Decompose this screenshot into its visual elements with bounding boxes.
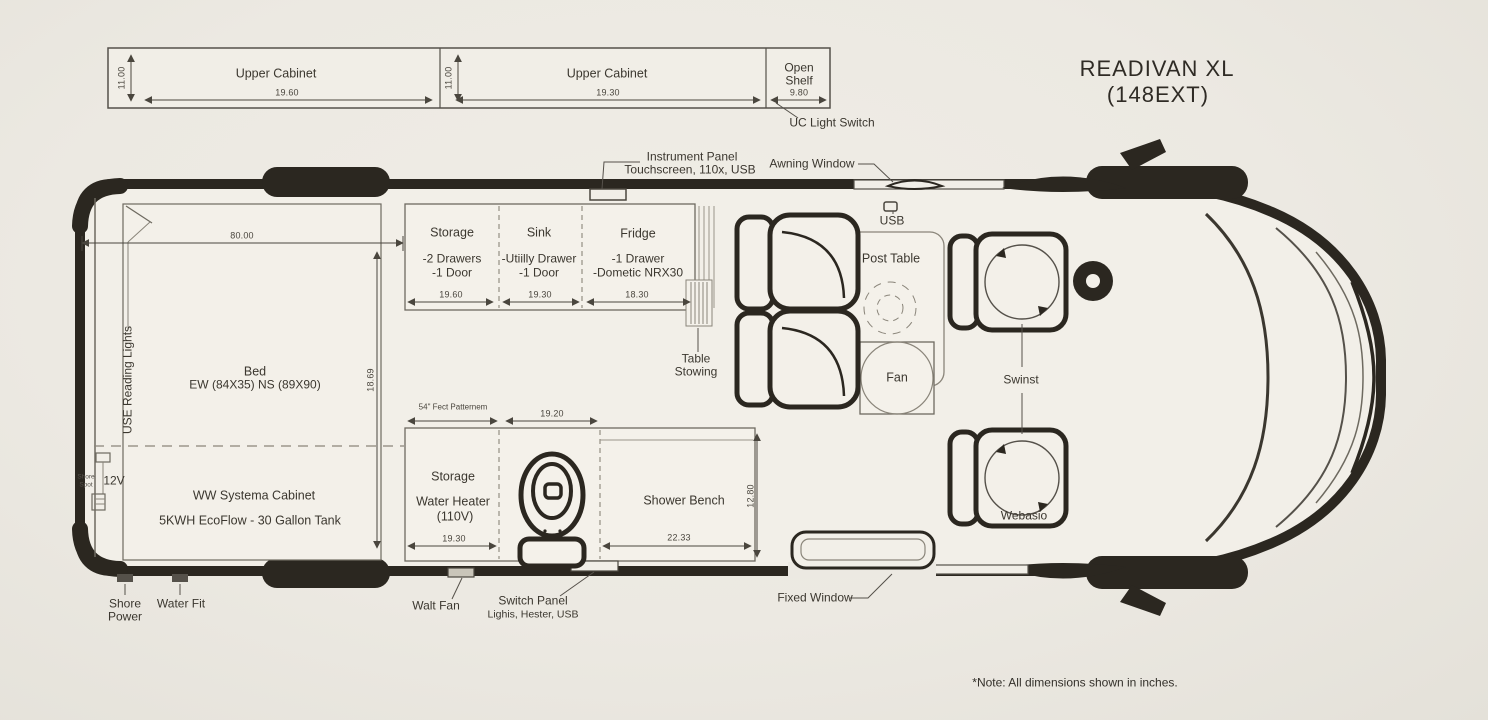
water-heater-voltage: (110V): [437, 511, 474, 524]
front-wheel-top: [1086, 166, 1248, 199]
bed-length-dim: 80.00: [230, 230, 254, 243]
upper-cabinet-strip: [108, 48, 830, 108]
van-floorplan-drawing: [0, 0, 1488, 720]
kitchen-storage-title: Storage: [430, 227, 474, 240]
wall-fan-label: Walt Fan: [412, 600, 460, 613]
water-fill-port: [172, 574, 188, 582]
shore-power-label-line2: Power: [108, 611, 142, 624]
front-wheel-bottom: [1086, 556, 1248, 589]
instrument-panel-marker: [590, 189, 626, 200]
instrument-panel-label-line2: Touchscreen, 110x, USB: [624, 164, 755, 177]
door-step: [792, 532, 934, 568]
dimensions-note: *Note: All dimensions shown in inches.: [972, 677, 1177, 690]
bed-depth-dim: 18.69: [365, 368, 378, 392]
bath-storage-width: 19.30: [442, 533, 466, 546]
fan-label: Fan: [886, 372, 908, 385]
bed-size-label: EW (84X35) NS (89X90): [189, 379, 320, 392]
upper-cabinet-2-width: 19.30: [596, 87, 620, 100]
sink-width: 19.30: [528, 289, 552, 302]
ww-systema-cabinet-label: WW Systema Cabinet: [193, 490, 315, 503]
switch-panel-detail: Lighis, Hester, USB: [487, 609, 578, 622]
mirror-bottom-icon: [1120, 585, 1166, 616]
wall-small-label-line1: Shore: [77, 474, 94, 481]
fridge-detail2: -Dometic NRX30: [593, 267, 683, 280]
upper-cabinet-1-width: 19.60: [275, 87, 299, 100]
fridge-title: Fridge: [620, 228, 655, 241]
wall-small-label-line2: Spot: [79, 482, 92, 489]
upper-cabinet-2-height: 11.00: [443, 67, 456, 90]
bath-storage-title: Storage: [431, 471, 475, 484]
foot-pattern-dim: 54" Fect Patternem: [419, 401, 488, 414]
toilet-icon: [520, 454, 584, 566]
awning-window-label: Awning Window: [769, 158, 854, 171]
mirror-top-icon: [1120, 139, 1166, 170]
ecoflow-tank-label: 5KWH EcoFlow - 30 Gallon Tank: [159, 515, 341, 528]
fridge-width: 18.30: [625, 289, 649, 302]
steering-wheel-hub: [1086, 274, 1100, 288]
usb-label: USB: [880, 215, 905, 228]
fixed-window-label: Fixed Window: [777, 592, 852, 605]
12v-outlet-label: 12V: [103, 475, 124, 488]
toilet-room-width: 19.20: [540, 408, 564, 421]
table-stowing-label-line2: Stowing: [675, 366, 718, 379]
upper-cabinet-1-height: 11.00: [116, 67, 129, 90]
kitchen-storage-detail2: -1 Door: [432, 267, 472, 280]
plan-title-line2: (148EXT): [1107, 82, 1209, 108]
post-table-label: Post Table: [862, 253, 920, 266]
webasto-label: Webasio: [1001, 510, 1047, 523]
swivel-seat-1-cushion: [976, 234, 1066, 330]
water-heater-label: Water Heater: [416, 496, 490, 509]
shower-bench-label: Shower Bench: [643, 495, 724, 508]
sink-detail2: -1 Door: [519, 267, 559, 280]
usb-marker-icon: [884, 202, 897, 211]
rear-wheel-bottom: [262, 558, 390, 588]
bench-seats: [737, 215, 858, 407]
uc-light-switch-label: UC Light Switch: [789, 117, 874, 130]
shore-power-port: [117, 574, 133, 582]
shower-bench-width: 22.33: [667, 532, 691, 545]
kitchen-storage-width: 19.60: [439, 289, 463, 302]
upper-cabinet-2-label: Upper Cabinet: [567, 68, 648, 81]
upper-cabinet-1-label: Upper Cabinet: [236, 68, 317, 81]
kitchen-storage-detail1: -2 Drawers: [423, 253, 482, 266]
plan-title-line1: READIVAN XL: [1080, 56, 1235, 82]
swivel-label: Swinst: [1003, 374, 1038, 387]
floorplan-canvas: READIVAN XL (148EXT) *Note: All dimensio…: [0, 0, 1488, 720]
reading-lights-label: USE Reading Lights: [122, 326, 135, 434]
shower-bench-depth: 12.80: [745, 484, 758, 508]
switch-panel-label: Switch Panel: [498, 595, 567, 608]
water-fit-label: Water Fit: [157, 598, 205, 611]
fridge-detail1: -1 Drawer: [612, 253, 665, 266]
rear-wheel-top: [262, 167, 390, 197]
open-shelf-width: 9.80: [790, 87, 808, 100]
sink-detail1: -Utiilly Drawer: [502, 253, 577, 266]
sink-title: Sink: [527, 227, 551, 240]
wall-fan-vent: [448, 568, 474, 577]
